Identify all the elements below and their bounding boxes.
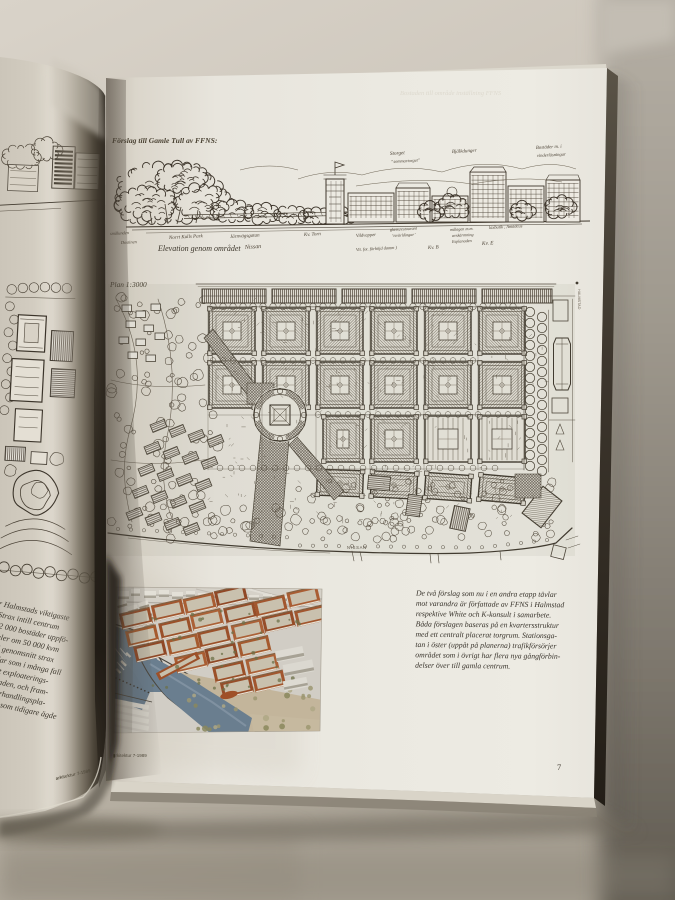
svg-text:Båda förslagen baseras på en k: Båda förslagen baseras på en kvartersstr… [416,619,560,630]
svg-text:Elevation genom området: Elevation genom området [157,244,241,253]
svg-text:HALMSTAD: HALMSTAD [577,289,581,310]
svg-text:De två förslag som nu i en and: De två förslag som nu i en andra etapp t… [415,588,558,598]
svg-text:delser över till gamla centrum: delser över till gamla centrum. [415,661,510,671]
svg-text:Kv. Torn: Kv. Torn [303,232,322,238]
svg-text:7: 7 [557,762,561,772]
svg-text:med ett centralt placerat torg: med ett centralt placerat torgrum. Stati… [415,630,557,640]
svg-text:Kv. B: Kv. B [427,245,439,251]
svg-text:tan i öster (uppåt på planerna: tan i öster (uppåt på planerna) trafikfö… [415,640,557,650]
svg-text:Nissan: Nissan [244,244,262,251]
svg-text:Storget: Storget [390,150,406,157]
svg-text:Bostaden till område inställni: Bostaden till område inställning FFNS [400,90,502,97]
svg-text:Vildvapper: Vildvapper [356,232,377,238]
svg-text:området som i övrigt har flera: området som i övrigt har flera nya gångf… [415,650,561,661]
svg-text:Förslag till Gamle Tull av FFN: Förslag till Gamle Tull av FFNS: [112,136,217,145]
svg-text:mot varandra är författade av: mot varandra är författade av FFNS i Hal… [416,599,565,610]
svg-text:respektive White och K-konsult: respektive White och K-konsult i samarbe… [416,609,552,619]
svg-text:Kv. E: Kv. E [481,240,495,247]
